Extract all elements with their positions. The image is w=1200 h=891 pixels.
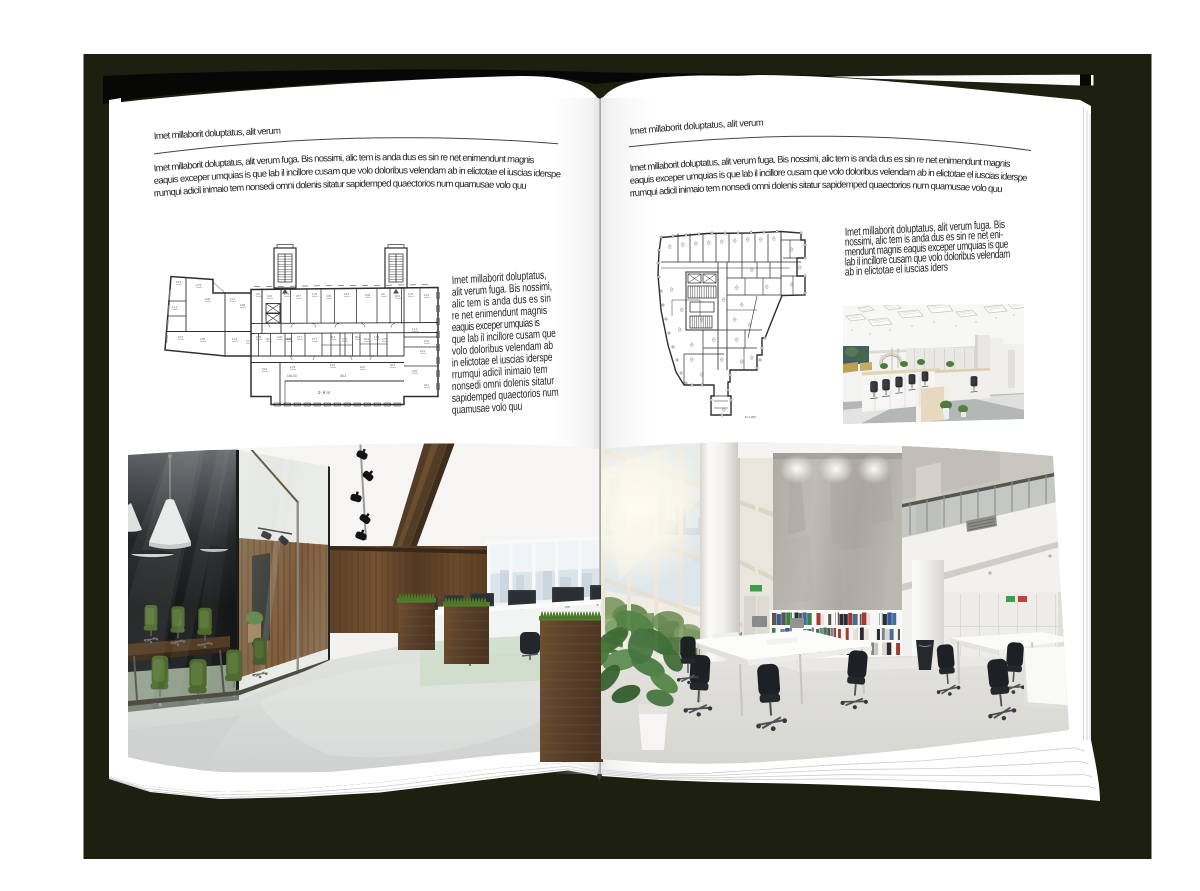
- svg-text:37.7: 37.7: [312, 337, 318, 341]
- svg-text:3.09: 3.09: [412, 369, 418, 373]
- svg-text:30.2: 30.2: [266, 337, 272, 341]
- svg-text:11.8: 11.8: [267, 294, 272, 298]
- svg-text:3.09: 3.09: [240, 303, 246, 307]
- svg-text:17.4: 17.4: [412, 327, 418, 331]
- svg-text:2-: 2-: [318, 390, 322, 395]
- svg-text:140.00: 140.00: [287, 374, 297, 378]
- svg-text:17.4: 17.4: [374, 335, 380, 339]
- svg-text:2.75: 2.75: [408, 292, 414, 296]
- svg-text:12.6: 12.6: [424, 293, 430, 297]
- svg-text:3.09: 3.09: [326, 294, 332, 298]
- svg-text:M 1:200: M 1:200: [745, 415, 756, 419]
- svg-text:17.4: 17.4: [284, 292, 290, 296]
- svg-text:3.09: 3.09: [365, 293, 371, 297]
- svg-text:2.75: 2.75: [312, 292, 318, 296]
- svg-text:4.8: 4.8: [256, 292, 260, 296]
- svg-text:15.6: 15.6: [178, 335, 184, 339]
- svg-text:15.6: 15.6: [287, 337, 293, 341]
- svg-text:30.2: 30.2: [330, 335, 336, 339]
- svg-text:2.75: 2.75: [290, 365, 296, 369]
- svg-text:12.6: 12.6: [330, 363, 336, 367]
- svg-text:30.2: 30.2: [424, 383, 430, 387]
- svg-text:30.2: 30.2: [355, 335, 361, 339]
- svg-text:3.09: 3.09: [200, 337, 206, 341]
- svg-text:2.75: 2.75: [256, 335, 262, 339]
- svg-text:3.09: 3.09: [205, 297, 211, 301]
- svg-text:46.3: 46.3: [340, 374, 346, 378]
- svg-text:й эт: й эт: [323, 390, 331, 395]
- svg-text:12.6: 12.6: [344, 292, 350, 296]
- svg-text:40.2: 40.2: [390, 363, 396, 367]
- svg-text:17.4: 17.4: [246, 339, 252, 343]
- svg-text:3.09: 3.09: [277, 335, 283, 339]
- svg-text:2.75: 2.75: [342, 337, 348, 341]
- svg-text:15.6: 15.6: [262, 367, 268, 371]
- svg-text:12.6: 12.6: [232, 337, 238, 341]
- svg-text:30.2: 30.2: [364, 337, 370, 341]
- svg-text:30.2: 30.2: [395, 294, 401, 298]
- svg-text:4.8: 4.8: [381, 292, 385, 296]
- svg-text:12.6: 12.6: [420, 349, 426, 353]
- svg-text:11.8: 11.8: [360, 365, 365, 369]
- svg-text:37.7: 37.7: [297, 335, 303, 339]
- svg-text:2.75: 2.75: [196, 283, 202, 287]
- svg-text:2.75: 2.75: [382, 337, 388, 341]
- svg-text:15.6: 15.6: [176, 280, 182, 284]
- svg-text:37.7: 37.7: [296, 294, 302, 298]
- svg-text:17.4: 17.4: [172, 305, 178, 309]
- svg-text:17.4: 17.4: [230, 297, 236, 301]
- svg-text:11.8: 11.8: [424, 339, 429, 343]
